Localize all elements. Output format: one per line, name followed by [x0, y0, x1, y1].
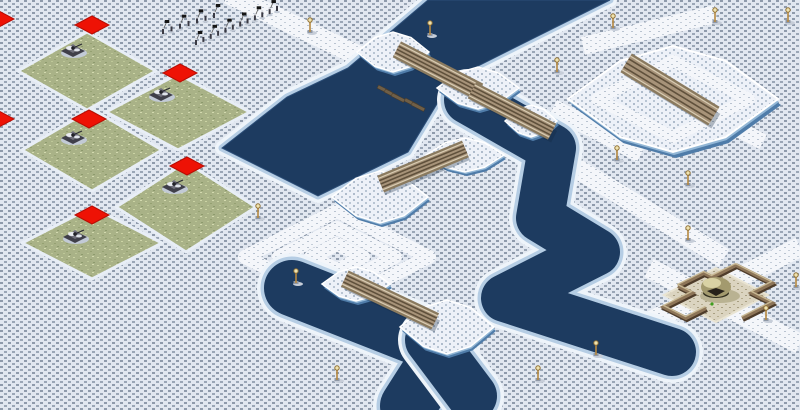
game-map-viewport[interactable] [0, 0, 800, 410]
infantry-head [196, 16, 198, 18]
unit-shadow [230, 29, 236, 31]
infantry-body [239, 21, 241, 26]
flag [182, 15, 187, 18]
infantry-body [196, 18, 198, 23]
unit-shadow [193, 45, 199, 47]
infantry-head [247, 16, 249, 18]
lamp-head [594, 341, 598, 345]
infantry-body [213, 13, 215, 18]
lamp-head [335, 366, 339, 370]
infantry-body [179, 24, 181, 29]
snow-cap [74, 49, 80, 52]
unit-shadow [215, 36, 221, 38]
unit-shadow [245, 23, 251, 25]
infantry-body [205, 16, 207, 21]
unit-shadow [194, 23, 200, 25]
lamp-head [686, 171, 690, 175]
lamp-head [713, 8, 717, 12]
snow-cap [162, 93, 168, 96]
infantry-body [202, 37, 204, 42]
unit-shadow [259, 17, 265, 19]
snow-cap [76, 235, 82, 238]
unit-shadow [211, 18, 217, 20]
flag [242, 12, 247, 15]
lamp-head [764, 306, 768, 310]
infantry-head [162, 27, 164, 29]
lamp-head [256, 204, 260, 208]
dome-highlight [703, 278, 721, 288]
snow-cap [175, 185, 181, 188]
lamp-head [536, 366, 540, 370]
flag [271, 0, 276, 3]
infantry-head [210, 32, 212, 34]
unit-shadow [252, 20, 258, 22]
infantry-body [232, 25, 234, 30]
infantry-head [239, 19, 241, 21]
unit-shadow [186, 26, 192, 28]
unit-shadow [160, 34, 166, 36]
infantry-head [171, 24, 173, 26]
flag [213, 25, 218, 28]
unit-shadow [222, 32, 228, 34]
infantry-head [224, 26, 226, 28]
lamp-head [428, 21, 432, 25]
flag [227, 19, 232, 22]
infantry-body [254, 15, 256, 20]
infantry-head [217, 29, 219, 31]
lamp-head [308, 18, 312, 22]
unit-shadow [274, 11, 280, 13]
infantry-body [224, 28, 226, 33]
flag [216, 4, 221, 7]
lamp-head [611, 14, 615, 18]
infantry-body [217, 31, 219, 36]
infantry-head [195, 38, 197, 40]
infantry-head [213, 11, 215, 13]
unit-shadow [208, 39, 214, 41]
infantry-head [205, 14, 207, 16]
lamp-head [686, 226, 690, 230]
infantry-head [179, 22, 181, 24]
unit-shadow [237, 26, 243, 28]
infantry-head [269, 7, 271, 9]
lamp-head [294, 269, 298, 273]
infantry-head [261, 10, 263, 12]
infantry-body [188, 21, 190, 26]
unit-shadow [267, 14, 273, 16]
infantry-head [276, 4, 278, 6]
lamp-head [786, 8, 790, 12]
infantry-body [247, 18, 249, 23]
flag [199, 9, 204, 12]
unit-shadow [203, 20, 209, 22]
infantry-body [261, 12, 263, 17]
infantry-body [162, 29, 164, 34]
snow-cap [74, 136, 80, 139]
infantry-head [188, 19, 190, 21]
infantry-head [232, 23, 234, 25]
lamp-head [555, 58, 559, 62]
unit-shadow [177, 28, 183, 30]
game-map-canvas[interactable] [0, 0, 800, 410]
flag [198, 31, 203, 34]
status-light [710, 302, 713, 305]
unit-shadow [169, 31, 175, 33]
infantry-body [210, 34, 212, 39]
infantry-body [171, 26, 173, 31]
flag [165, 20, 170, 23]
unit-shadow [200, 42, 206, 44]
infantry-head [202, 35, 204, 37]
infantry-body [276, 6, 278, 11]
lamp-head [794, 273, 798, 277]
infantry-body [195, 40, 197, 45]
infantry-body [269, 9, 271, 14]
infantry-head [254, 13, 256, 15]
flag [257, 6, 262, 9]
lamp-head [615, 146, 619, 150]
